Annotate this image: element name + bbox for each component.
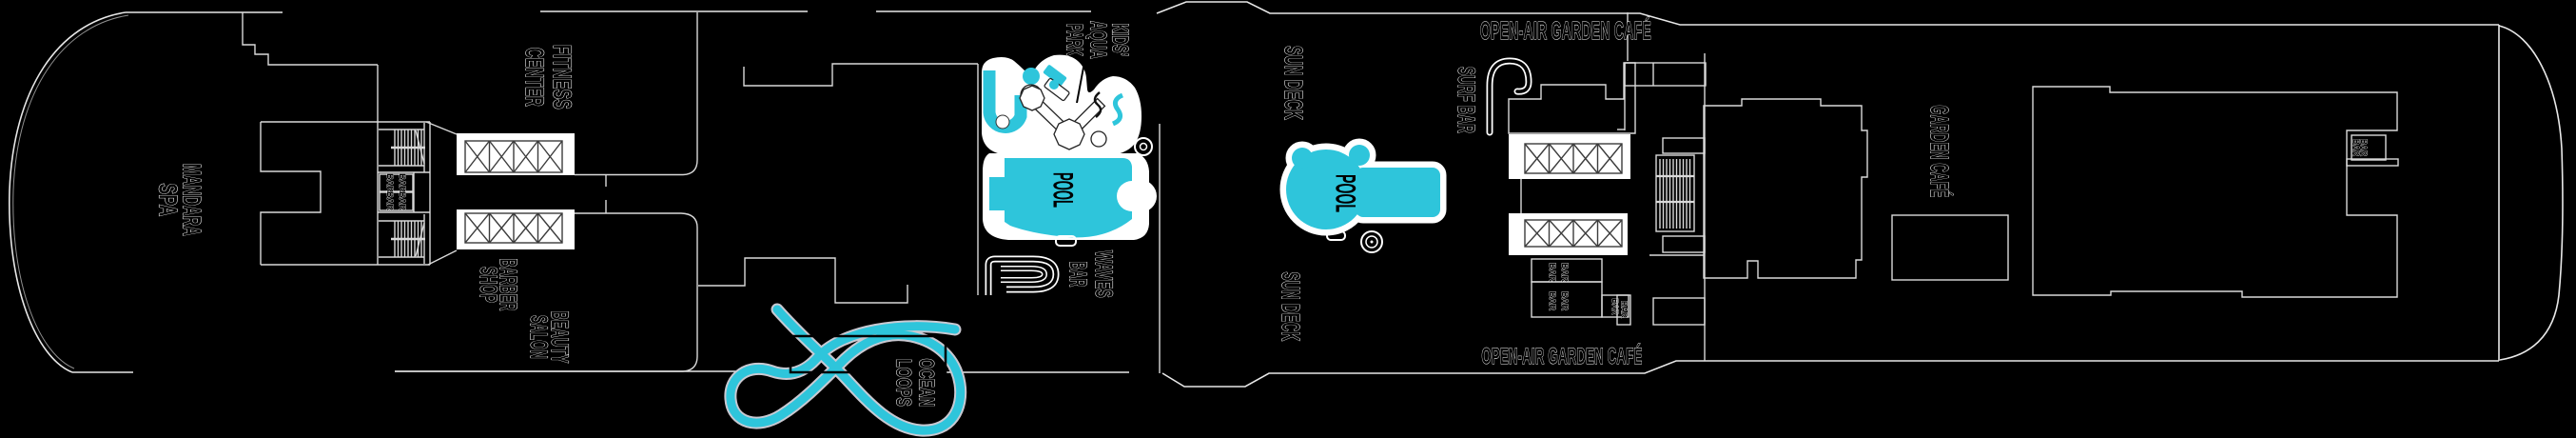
svg-text:OPEN-AIR GARDEN CAFÉ: OPEN-AIR GARDEN CAFÉ bbox=[1482, 343, 1643, 369]
svg-text:BAR: BAR bbox=[1610, 299, 1620, 315]
svg-text:BAR: BAR bbox=[2352, 139, 2361, 156]
svg-text:SPA: SPA bbox=[154, 184, 183, 217]
svg-text:BAR: BAR bbox=[385, 191, 395, 211]
svg-text:OPEN-AIR GARDEN CAFÉ: OPEN-AIR GARDEN CAFÉ bbox=[1480, 16, 1651, 45]
svg-text:BAR: BAR bbox=[1620, 301, 1629, 318]
svg-text:WAVES: WAVES bbox=[1090, 250, 1117, 298]
svg-text:SUN DECK: SUN DECK bbox=[1279, 46, 1308, 120]
svg-text:BAR: BAR bbox=[1560, 263, 1570, 283]
svg-text:BAR: BAR bbox=[1560, 291, 1570, 311]
svg-text:BAR: BAR bbox=[1548, 263, 1557, 283]
svg-text:BAR: BAR bbox=[398, 173, 407, 193]
svg-text:FITNESS: FITNESS bbox=[548, 45, 576, 109]
svg-text:LOOPS: LOOPS bbox=[892, 359, 916, 407]
svg-text:SURF BAR: SURF BAR bbox=[1453, 67, 1479, 133]
svg-text:AQUA: AQUA bbox=[1085, 21, 1111, 59]
svg-text:PARK: PARK bbox=[1062, 24, 1087, 56]
svg-text:BAR: BAR bbox=[1548, 291, 1557, 311]
svg-text:BAR: BAR bbox=[385, 173, 395, 193]
svg-text:CENTER: CENTER bbox=[520, 48, 549, 107]
svg-text:POOL: POOL bbox=[1047, 172, 1079, 208]
svg-text:OCEAN: OCEAN bbox=[915, 359, 939, 408]
svg-text:SUN DECK: SUN DECK bbox=[1277, 272, 1305, 342]
svg-text:GARDEN CAFÉ: GARDEN CAFÉ bbox=[1925, 106, 1954, 198]
svg-text:POOL: POOL bbox=[1330, 174, 1361, 212]
svg-text:SALON: SALON bbox=[525, 315, 552, 359]
svg-text:BAR: BAR bbox=[1064, 262, 1091, 288]
svg-text:BAR: BAR bbox=[398, 191, 407, 211]
svg-text:SHOP: SHOP bbox=[475, 267, 501, 303]
